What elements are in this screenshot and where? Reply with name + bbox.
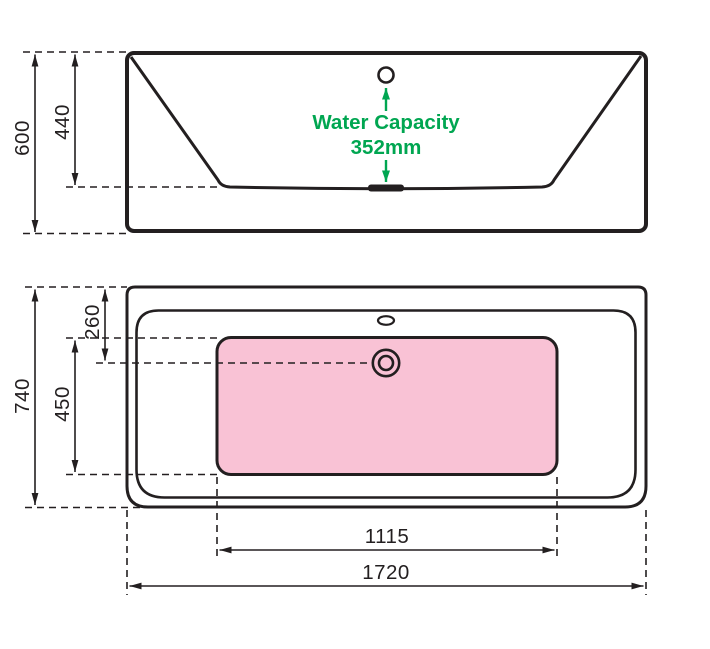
plan-view: 740 450 260 1115 1720 xyxy=(11,287,646,595)
dimension-value: 450 xyxy=(51,386,74,422)
plan-basin-floor xyxy=(217,338,557,475)
dimension-value: 440 xyxy=(51,104,74,140)
bathtub-dimension-diagram: Water Capacity 352mm 600 440 xyxy=(0,0,710,644)
dimension-value: 1115 xyxy=(365,525,410,548)
dimension-overall-length: 1720 xyxy=(130,561,644,586)
side-waste-outlet xyxy=(368,185,404,192)
side-elevation: Water Capacity 352mm 600 440 xyxy=(11,52,646,234)
overflow-hole-icon xyxy=(379,68,394,83)
water-capacity-label: Water Capacity xyxy=(312,111,460,134)
dimension-value: 740 xyxy=(11,378,34,414)
dimension-basin-length: 1115 xyxy=(220,525,555,550)
dimension-value: 1720 xyxy=(362,561,410,584)
dimension-value: 260 xyxy=(81,304,104,340)
dimension-overall-height: 600 xyxy=(11,55,35,233)
water-capacity-value: 352mm xyxy=(351,136,422,159)
diagram-canvas: Water Capacity 352mm 600 440 xyxy=(0,0,710,644)
dimension-inner-depth: 440 xyxy=(51,55,75,186)
dimension-value: 600 xyxy=(11,120,34,156)
plan-overflow-icon xyxy=(378,316,394,325)
dimension-rim-to-waste: 260 xyxy=(81,290,105,361)
dimension-overall-width: 740 xyxy=(11,290,35,506)
dimension-basin-width: 450 xyxy=(51,341,75,473)
